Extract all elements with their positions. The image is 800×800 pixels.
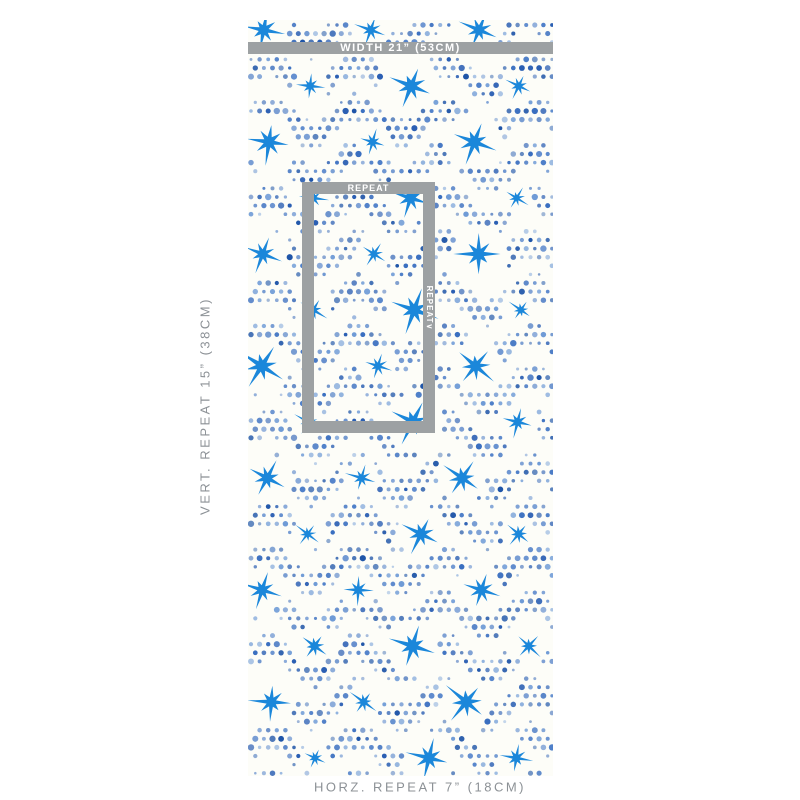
repeat-down-arrow-icon: ∨: [425, 323, 434, 330]
page-root: VERT. REPEAT 15” (38CM) WIDTH 21” (53CM)…: [0, 0, 800, 800]
repeat-box-side-label: REPEAT∨: [423, 285, 435, 330]
repeat-box-top-label: REPEAT: [302, 182, 435, 194]
width-measure-bar: WIDTH 21” (53CM): [248, 42, 553, 54]
repeat-side-text: REPEAT: [425, 285, 434, 323]
fabric-swatch: WIDTH 21” (53CM) REPEAT REPEAT∨: [248, 20, 553, 776]
repeat-box: REPEAT REPEAT∨: [302, 182, 435, 433]
width-label: WIDTH 21” (53CM): [340, 42, 461, 54]
vertical-repeat-label: VERT. REPEAT 15” (38CM): [198, 297, 213, 515]
horizontal-repeat-label: HORZ. REPEAT 7” (18CM): [314, 780, 526, 795]
